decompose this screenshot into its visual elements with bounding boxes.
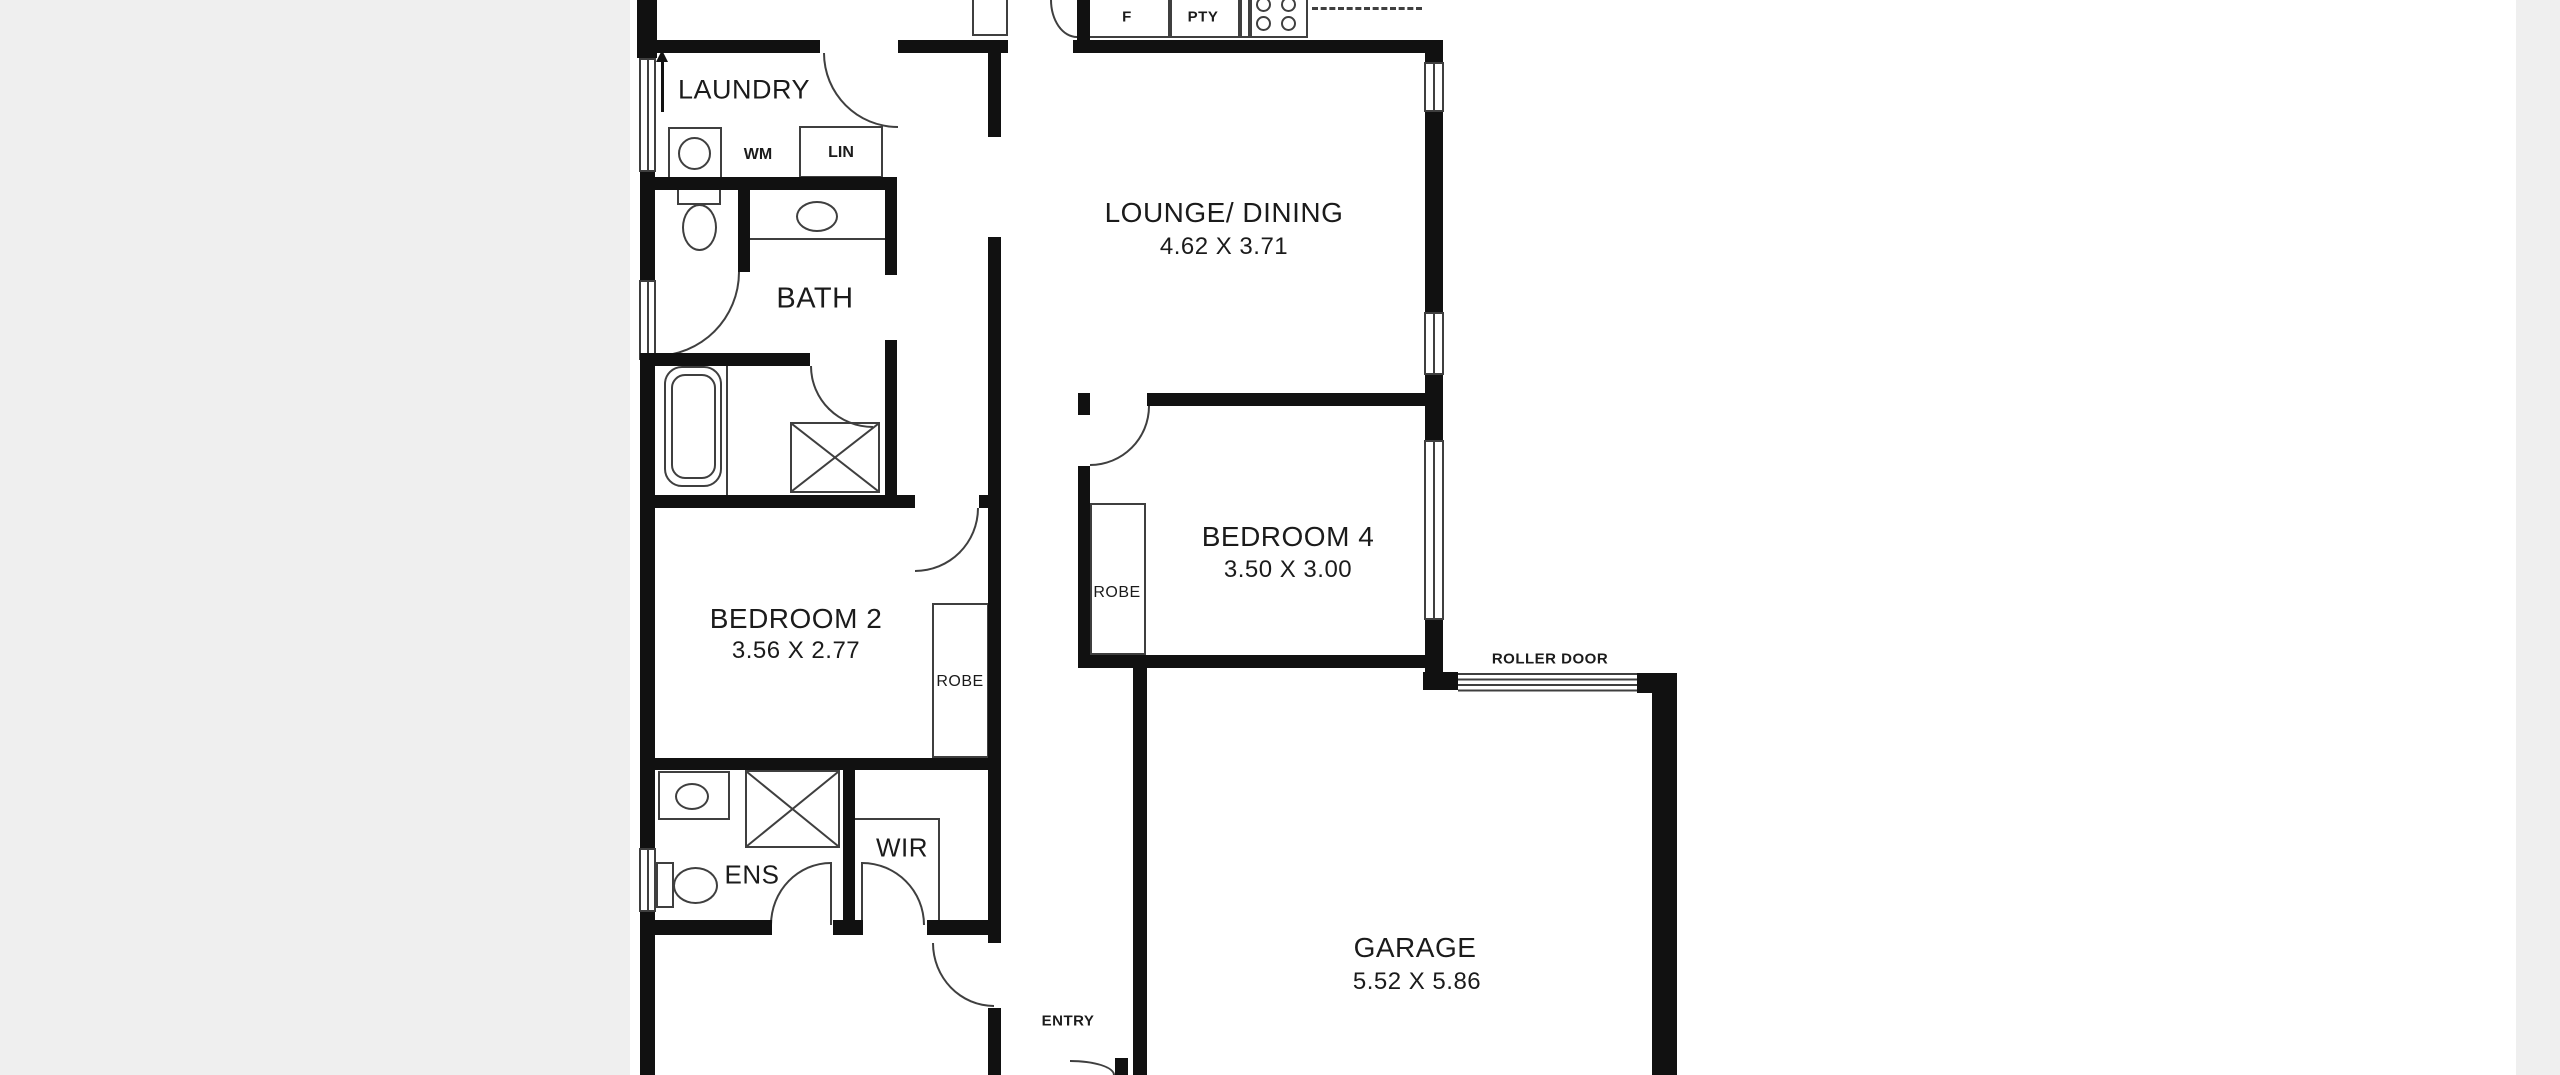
room-dims-bedroom4: 3.50 X 3.00 — [1224, 556, 1352, 584]
wall — [885, 177, 897, 275]
wall — [1133, 655, 1147, 1075]
bench-divider — [1240, 0, 1250, 38]
fixture-label-pantry: PTY — [1188, 9, 1219, 26]
wall — [979, 495, 1001, 508]
ens-cistern-icon — [656, 862, 674, 908]
wall — [1078, 466, 1090, 668]
bath-vanity-line — [750, 238, 886, 240]
room-dims-garage: 5.52 X 5.86 — [1353, 968, 1481, 996]
wall — [927, 920, 1001, 935]
room-label-bedroom4: BEDROOM 4 — [1202, 521, 1375, 553]
robe-label-bedroom4: ROBE — [1093, 584, 1140, 602]
laundry-trough-basin-icon — [678, 137, 711, 170]
window — [1424, 440, 1444, 620]
wall — [1425, 620, 1443, 672]
room-dims-lounge-dining: 4.62 X 3.71 — [1160, 233, 1288, 261]
wir-shelf-line — [938, 818, 940, 930]
ens-shower-icon — [745, 770, 840, 848]
wall — [654, 177, 897, 190]
wall — [1425, 40, 1443, 62]
kitchen-cupboard — [972, 0, 1008, 36]
toilet-icon — [682, 204, 717, 251]
room-label-ens: ENS — [725, 860, 780, 891]
wall — [1637, 673, 1677, 693]
ens-toilet-icon — [673, 867, 718, 904]
fixture-label-fridge: F — [1122, 9, 1132, 26]
fixture-label-lin: LIN — [828, 144, 854, 162]
wall — [1425, 112, 1443, 312]
room-label-laundry: LAUNDRY — [678, 75, 810, 106]
wall — [988, 237, 1001, 943]
wall — [1423, 672, 1458, 690]
roller-door-symbol — [1458, 673, 1638, 693]
door-leaf — [861, 862, 863, 925]
door-leaf — [1077, 0, 1090, 40]
wall — [843, 770, 855, 935]
room-label-wir: WIR — [876, 833, 928, 864]
bath-alcove-line — [726, 363, 728, 495]
room-label-garage: GARAGE — [1354, 932, 1477, 964]
wall — [640, 495, 915, 508]
wall — [654, 40, 820, 53]
wir-shelf-line — [855, 818, 940, 820]
window — [639, 58, 656, 172]
wall — [640, 172, 655, 280]
wall — [1147, 393, 1443, 406]
wc-cistern-icon — [677, 188, 721, 205]
window — [1424, 312, 1444, 375]
room-dims-bedroom2: 3.56 X 2.77 — [732, 637, 860, 665]
wall — [898, 40, 1008, 53]
ens-basin-icon — [675, 783, 709, 810]
bathtub-inner-icon — [671, 374, 716, 479]
door-leaf — [1115, 1058, 1128, 1075]
shower-x-lines — [792, 424, 878, 491]
robe-label-bedroom2: ROBE — [936, 673, 983, 691]
roller-door-label: ROLLER DOOR — [1492, 651, 1608, 668]
wall — [1652, 692, 1677, 1075]
cooktop-burner-icon — [1256, 16, 1271, 31]
laundry-arrow-line — [661, 62, 664, 112]
room-label-bedroom2: BEDROOM 2 — [710, 603, 883, 635]
wall — [1078, 655, 1425, 668]
wall — [988, 53, 1001, 137]
floorplan-screenshot: LAUNDRY WM LIN BATH LOUNGE/ DINING 4.62 … — [0, 0, 2560, 1075]
shower-icon — [790, 422, 880, 493]
basin-icon — [796, 201, 838, 232]
fixture-label-wm: WM — [744, 146, 772, 164]
window — [639, 848, 656, 912]
overhead-cupboard-dashed-line — [1312, 7, 1422, 10]
bedroom4-robe-box — [1090, 503, 1146, 655]
wall — [1425, 375, 1443, 440]
wall — [885, 340, 897, 507]
wall — [654, 758, 1001, 770]
cooktop-burner-icon — [1281, 16, 1296, 31]
room-label-bath: BATH — [776, 283, 853, 316]
wall — [833, 920, 863, 935]
wall — [640, 360, 655, 848]
wall — [640, 920, 772, 935]
window — [639, 280, 656, 360]
wall — [1073, 40, 1443, 53]
wall — [988, 1008, 1001, 1075]
wall — [640, 912, 655, 1075]
door-leaf — [830, 862, 832, 925]
window — [1424, 62, 1444, 112]
wall — [1078, 393, 1090, 415]
ens-shower-x-lines — [747, 772, 838, 846]
wall — [640, 353, 810, 366]
room-label-entry: ENTRY — [1042, 1013, 1095, 1030]
wall — [738, 190, 750, 272]
room-label-lounge-dining: LOUNGE/ DINING — [1105, 197, 1344, 229]
